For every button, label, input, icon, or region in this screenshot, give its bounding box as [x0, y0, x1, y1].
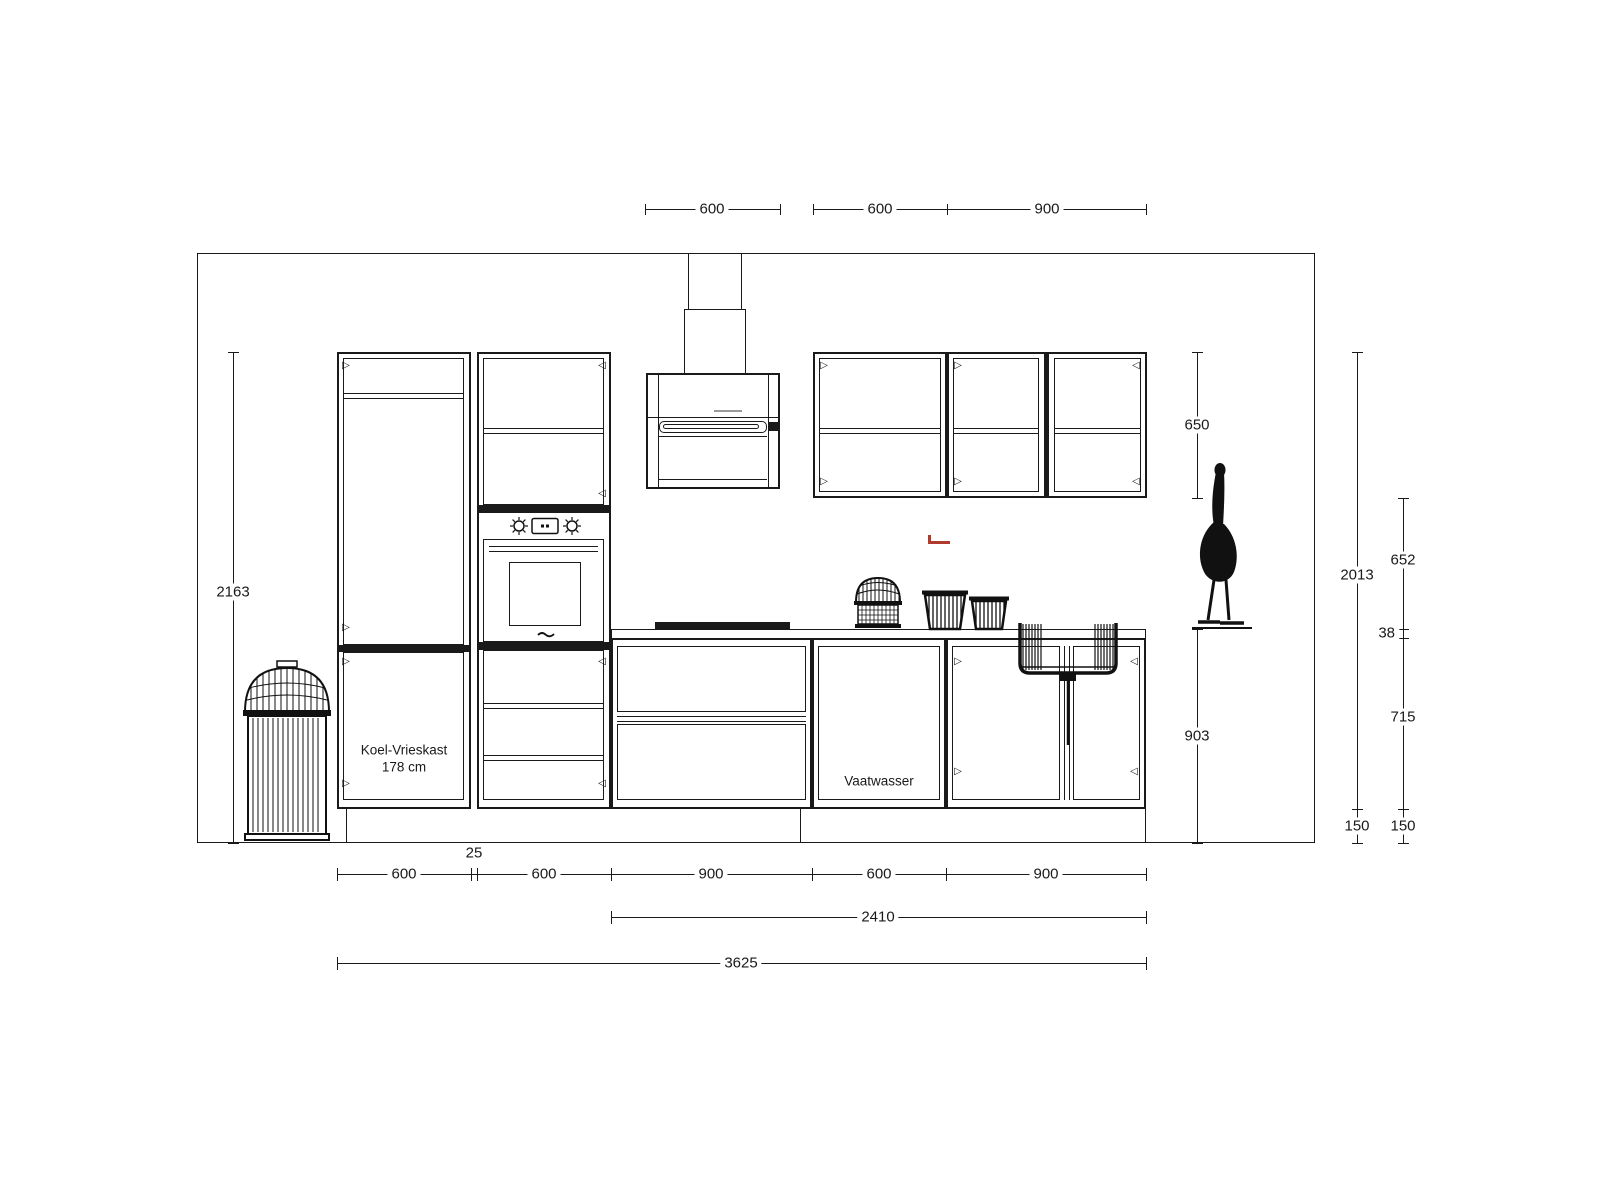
wall-shelf-line	[1055, 428, 1140, 429]
dim-label-gap-652: 652	[1386, 552, 1419, 569]
dim-label-drawers-900: 900	[694, 866, 727, 883]
dim-label-run-2410: 2410	[857, 909, 898, 926]
hinge-icon: ◁	[598, 657, 606, 667]
dim-tick	[947, 204, 948, 215]
hinge-icon: ◁	[598, 361, 606, 371]
hood-chimney-upper	[688, 253, 742, 310]
dim-tick	[228, 352, 239, 353]
dim-label-wallcab-height: 650	[1180, 417, 1213, 434]
oven-window	[509, 562, 581, 626]
cooktop	[655, 622, 790, 629]
tower-divider-band	[477, 642, 611, 650]
hood-inner-line	[659, 479, 767, 480]
oven-knob-icon	[567, 521, 577, 531]
oven-logo-icon	[536, 630, 556, 638]
sink-icon	[1012, 621, 1124, 749]
dim-tick	[1146, 204, 1147, 215]
hood-inner-line	[658, 375, 659, 487]
wall-shelf-line	[820, 433, 940, 434]
dim-label-total-height: 2163	[212, 584, 253, 601]
hood-inner-line	[659, 436, 767, 437]
dim-tick	[337, 957, 338, 970]
hinge-icon: ▷	[820, 361, 828, 371]
hinge-icon: ◁	[1130, 767, 1138, 777]
fridge-lower-door	[343, 652, 464, 800]
dim-tick	[1352, 843, 1363, 844]
dim-label-plinth-b: 150	[1386, 818, 1419, 835]
hinge-icon: ◁	[1132, 477, 1140, 487]
dim-label-fridge-600: 600	[387, 866, 420, 883]
dim-tick	[812, 868, 813, 881]
hinge-icon: ▷	[342, 657, 350, 667]
dim-tick	[1398, 843, 1409, 844]
hood-inner-line	[768, 375, 769, 487]
fridge-label: Koel-Vrieskast	[361, 743, 448, 758]
dim-label-hood-width: 600	[695, 201, 728, 218]
hinge-icon: ▷	[954, 361, 962, 371]
wall-shelf-line	[954, 428, 1038, 429]
oven-display	[532, 519, 558, 534]
dim-tick	[611, 911, 612, 924]
dim-label-tower-600: 600	[527, 866, 560, 883]
dim-label-worktop-38: 38	[1374, 625, 1399, 642]
dim-tick	[611, 868, 612, 881]
hood-badge	[769, 422, 779, 431]
dim-label-units-height: 2013	[1336, 567, 1377, 584]
hinge-icon: ◁	[1132, 361, 1140, 371]
dim-label-base-715: 715	[1386, 709, 1419, 726]
dim-label-worktop-height: 903	[1180, 728, 1213, 745]
wall-cabinet-900-divider	[1044, 352, 1049, 498]
wire-bin-icon	[241, 660, 333, 844]
dim-label-sink-900: 900	[1029, 866, 1062, 883]
dim-tick	[1192, 498, 1203, 499]
wire-birdcage-icon	[853, 574, 903, 630]
plinth-edge	[1145, 809, 1146, 843]
hinge-icon: ▷	[342, 779, 350, 789]
drawer-rail-line	[617, 721, 806, 722]
hinge-icon: ▷	[820, 477, 828, 487]
wall-cabinet-900-right-door	[1054, 358, 1141, 492]
dim-tick	[477, 868, 478, 881]
dim-tick	[645, 204, 646, 215]
tower-shelf-line	[484, 433, 604, 434]
hinge-icon: ◁	[598, 779, 606, 789]
dim-tick	[1146, 957, 1147, 970]
fridge-divider-band	[337, 645, 471, 652]
plinth-joint	[800, 809, 801, 843]
hinge-icon: ▷	[342, 361, 350, 371]
hood-inner-line	[648, 417, 778, 418]
oven-door-trim	[489, 546, 598, 547]
bird-sculpture-icon	[1190, 462, 1254, 630]
hinge-icon: ▷	[954, 657, 962, 667]
oven-control-panel	[484, 513, 604, 539]
hood-chimney-lower	[684, 309, 746, 374]
fridge-top-panel-line	[344, 393, 464, 394]
dim-tick	[1352, 352, 1363, 353]
dim-tick	[228, 843, 239, 844]
fridge-upper-door	[343, 358, 464, 645]
tower-drawer-line	[484, 760, 604, 761]
dim-tick	[813, 204, 814, 215]
dim-label-wallcab-900: 900	[1030, 201, 1063, 218]
oven-knob-icon	[514, 521, 524, 531]
drawer-front-top	[617, 646, 806, 712]
dim-tick	[1146, 911, 1147, 924]
oven-door-trim	[489, 551, 598, 552]
hinge-icon: ◁	[598, 489, 606, 499]
dim-line	[337, 874, 1146, 875]
dim-tick	[1146, 868, 1147, 881]
red-revision-mark	[928, 541, 950, 544]
hood-vent-strip-inner	[663, 424, 759, 429]
tower-drawer-line	[484, 703, 604, 704]
hood-brand-mark	[714, 410, 742, 412]
dim-label-filler-25: 25	[466, 845, 483, 862]
fridge-size-label: 178 cm	[382, 760, 426, 775]
tower-lower-front	[483, 650, 604, 800]
wall-shelf-line	[820, 428, 940, 429]
hinge-icon: ▷	[342, 623, 350, 633]
dim-tick	[1192, 843, 1203, 844]
dishwasher-label: Vaatwasser	[844, 774, 914, 789]
plinth-edge	[346, 809, 347, 843]
tower-shelf-line	[484, 428, 604, 429]
tower-drawer-line	[484, 708, 604, 709]
tower-upper-door	[483, 358, 604, 505]
dim-tick	[337, 868, 338, 881]
dim-tick	[946, 868, 947, 881]
wall-shelf-line	[1055, 433, 1140, 434]
dim-tick	[1192, 352, 1203, 353]
drawer-rail-line	[617, 716, 806, 717]
fridge-top-panel-line	[344, 398, 464, 399]
wire-basket-icon	[922, 590, 968, 630]
dim-line	[1403, 629, 1404, 638]
dim-label-dishwasher-600: 600	[862, 866, 895, 883]
dim-tick	[1192, 629, 1203, 630]
dim-label-total-3625: 3625	[720, 955, 761, 972]
tower-divider-band	[477, 505, 611, 513]
tower-drawer-line	[484, 755, 604, 756]
hinge-icon: ▷	[954, 767, 962, 777]
wall-cabinet-600-door	[819, 358, 941, 492]
dim-tick	[1398, 498, 1409, 499]
dim-label-plinth-a: 150	[1340, 818, 1373, 835]
drawer-front-bottom	[617, 724, 806, 800]
dim-tick	[471, 868, 472, 881]
hinge-icon: ◁	[1130, 657, 1138, 667]
wire-basket-icon	[969, 596, 1009, 630]
dim-label-wallcab-600: 600	[863, 201, 896, 218]
wall-shelf-line	[954, 433, 1038, 434]
hinge-icon: ▷	[954, 477, 962, 487]
wall-cabinet-900-left-door	[953, 358, 1039, 492]
dim-tick	[780, 204, 781, 215]
kitchen-elevation-drawing: ▷ ▷ ▷ ▷ Koel-Vrieskast 178 cm	[0, 0, 1600, 1200]
